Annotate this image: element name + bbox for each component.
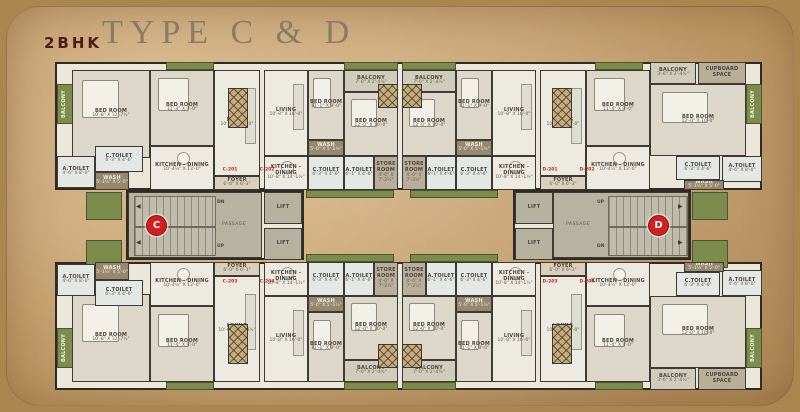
room-living: LIVING10'-8" X 16'-0" [264, 296, 308, 382]
room-dims: 5'-0" X 5'-1½" [458, 304, 490, 309]
room-store: STORE ROOM4'-0" X 7'-2½" [374, 262, 398, 296]
room-wash: WASH5'-0" X 5'-1½" [456, 296, 492, 312]
lift-label: LIFT [528, 205, 541, 211]
room-kitchen: KITCHEN - DINING10'-8" X 14'-1½" [492, 156, 536, 190]
room-label: CUPBOARD SPACE [699, 67, 745, 79]
room-dims: 12'-0" X 10'-0" [682, 332, 715, 337]
room-bed: BED ROOM12'-0" X 10'-0" [650, 84, 746, 156]
room-wash: WASH5'-1½" X 5'-0" [684, 180, 724, 190]
flat-number-label: D-204 [579, 280, 594, 285]
room-dims: 3'-6" X 2'-4½" [657, 379, 689, 384]
room-dims: 6'-3" X 4'-6" [684, 168, 711, 173]
room-wash: WASH5'-1½" X 5'-0" [95, 172, 129, 190]
room-dims: 6'-1" X 4'-6" [427, 173, 454, 178]
lift: LIFT [264, 228, 302, 260]
room-dims: 4'-6" X 8'-0" [728, 169, 755, 174]
room-toilet: C.TOILET6'-3" X 4'-6" [95, 146, 143, 172]
stair-arrow-icon: ◀ [136, 204, 141, 210]
planter-strip [306, 190, 394, 198]
room-bed: BED ROOM11'-4" X 9'-0" [586, 70, 650, 146]
room-balcony: BALCONY3'-6" X 2'-4½" [650, 62, 696, 84]
room-wash: WASH5'-0" X 5'-1½" [308, 140, 344, 156]
room-dims: 3'-6" X 2'-4½" [657, 73, 689, 78]
bhk-label: 2BHK [44, 34, 102, 52]
room-toilet: A.TOILET6'-1" X 4'-6" [426, 156, 456, 190]
planter-strip [344, 382, 398, 390]
room-dims: 6'-3" X 4'-6" [312, 173, 339, 178]
room-dims: 11'-4" X 9'-0" [603, 344, 633, 349]
room-bed: BED ROOM10'-8" X 12'-7½" [72, 294, 150, 382]
room-dims: 12'-0" X 10'-0" [413, 328, 446, 333]
room-store: STORE ROOM4'-0" X 7'-2½" [402, 156, 426, 190]
room-bed: BED ROOM12'-0" X 10'-0" [650, 296, 746, 368]
room-dims: 7'-0" X 2'-4½" [355, 371, 387, 376]
room-toilet: A.TOILET4'-6" X 8'-0" [722, 156, 762, 182]
room-dims: 11'-1" X 9'-0" [311, 347, 341, 352]
lift-label: LIFT [528, 241, 541, 247]
room-bed: BED ROOM11'-4" X 9'-0" [586, 306, 650, 382]
duct-shaft [402, 344, 422, 368]
room-bed: BED ROOM11'-1" X 9'-0" [308, 70, 344, 140]
room-toilet: A.TOILET6'-1" X 4'-6" [344, 262, 374, 296]
duct-shaft [552, 88, 572, 128]
room-dims: 5'-0" X 5'-1½" [310, 148, 342, 153]
flat-number-label: D-203 [542, 280, 557, 285]
room-balcony-v: BALCONY3'-6" X 1'-10½" [746, 84, 762, 124]
duct-shaft [378, 84, 398, 108]
room-store: CUPBOARD SPACE [698, 368, 746, 390]
planter-strip [692, 192, 728, 220]
floor-plan: BALCONY3'-6" X 1'-10½"BED ROOM10'-8" X 1… [0, 0, 800, 412]
room-wash: WASH5'-1½" X 5'-0" [684, 262, 724, 272]
room-dims: 4'-0" X 7'-2½" [375, 280, 397, 290]
type-title: TYPE C & D [102, 14, 356, 52]
room-dims: 10'-8" X 14'-1½" [495, 176, 532, 181]
room-wash: WASH5'-1½" X 5'-0" [95, 262, 129, 280]
room-dims: 6'-0" X 6'-3" [223, 269, 250, 274]
room-toilet: C.TOILET6'-3" X 4'-6" [308, 262, 344, 296]
planter-strip [166, 62, 214, 70]
wing-badge-d: D [648, 215, 669, 236]
room-dims: 5'-0" X 5'-1½" [310, 304, 342, 309]
room-toilet: A.TOILET6'-1" X 4'-6" [344, 156, 374, 190]
room-toilet: C.TOILET6'-3" X 4'-6" [308, 156, 344, 190]
planter-strip [402, 382, 456, 390]
room-kitchen: KITCHEN - DINING10'-8" X 14'-1½" [264, 156, 308, 190]
room-dims: 11'-4" X 9'-0" [603, 108, 633, 113]
room-toilet: A.TOILET4'-6" X 8'-0" [722, 270, 762, 296]
lift-label: LIFT [277, 205, 290, 211]
duct-shaft [378, 344, 398, 368]
room-dims: 12'-0" X 10'-0" [413, 124, 446, 129]
room-dims: 4'-0" X 7'-2½" [403, 280, 425, 290]
room-dims: 5'-0" X 5'-1½" [458, 148, 490, 153]
duct-shaft [552, 324, 572, 364]
flat-number-label: C-202 [260, 168, 275, 173]
room-bed: BED ROOM11'-1" X 9'-0" [456, 312, 492, 382]
room-dims: 10'-8" X 12'-7½" [92, 338, 129, 343]
room-living: LIVING10'-8" X 16'-0" [492, 296, 536, 382]
room-toilet: C.TOILET6'-3" X 4'-6" [676, 272, 720, 296]
room-wash: WASH5'-0" X 5'-1½" [456, 140, 492, 156]
room-foyer: FOYER6'-0" X 6'-3" [540, 176, 586, 190]
room-dims: 6'-1" X 4'-6" [345, 279, 372, 284]
lift: LIFT [515, 192, 553, 224]
room-dims: 4'-0" X 7'-2½" [403, 174, 425, 184]
room-kitchen: KITCHEN - DINING10'-4½" X 13'-0" [150, 146, 214, 190]
room-dims: 11'-4" X 9'-0" [167, 344, 197, 349]
planter-strip [86, 192, 122, 220]
flat-number-label: D-201 [542, 168, 557, 173]
stair-direction-label: UP [597, 200, 604, 205]
duct-shaft [402, 84, 422, 108]
room-bed: BED ROOM10'-8" X 12'-7½" [72, 70, 150, 158]
room-dims: 11'-1" X 9'-0" [311, 105, 341, 110]
room-dims: 6'-0" X 6'-3" [223, 183, 250, 188]
room-dims: 12'-0" X 10'-0" [682, 120, 715, 125]
room-living: LIVING10'-8" X 16'-0" [264, 70, 308, 156]
room-dims: 10'-4½" X 13'-0" [163, 284, 200, 289]
lift-label: LIFT [277, 241, 290, 247]
room-dims: 10'-8" X 16'-0" [270, 113, 303, 118]
room-dims: 7'-0" X 2'-4½" [413, 371, 445, 376]
room-dims: 4'-6" X 8'-0" [728, 283, 755, 288]
room-label: BALCONY [751, 90, 757, 118]
duct-shaft [228, 88, 248, 128]
stair-arrow-icon: ◀ [136, 240, 141, 246]
room-kitchen: KITCHEN - DINING10'-4½" X 13'-0" [586, 146, 650, 190]
room-toilet: C.TOILET6'-3" X 4'-6" [676, 156, 720, 180]
room-dims: 10'-8" X 16'-0" [270, 339, 303, 344]
room-dims: 6'-3" X 4'-6" [105, 293, 132, 298]
room-dims: 6'-0" X 6'-3" [549, 269, 576, 274]
room-dims: 11'-4" X 9'-0" [167, 108, 197, 113]
flat-number-label: D-202 [579, 168, 594, 173]
room-bed: BED ROOM11'-1" X 9'-0" [456, 70, 492, 140]
stair-direction-label: UP [217, 244, 224, 249]
room-dims: 6'-0" X 6'-3" [549, 183, 576, 188]
planter-strip [595, 62, 643, 70]
room-kitchen: KITCHEN - DINING10'-8" X 14'-1½" [492, 262, 536, 296]
room-dims: 10'-8" X 14'-1½" [267, 176, 304, 181]
room-dims: 6'-3" X 4'-6" [684, 284, 711, 289]
passage-label: PASSAGE [566, 222, 590, 227]
room-dims: 6'-3" X 4'-6" [312, 279, 339, 284]
room-kitchen: KITCHEN - DINING10'-4½" X 13'-0" [586, 262, 650, 306]
room-toilet: A.TOILET6'-1" X 4'-6" [426, 262, 456, 296]
stair-direction-label: DN [597, 244, 605, 249]
room-dims: 12'-0" X 10'-0" [355, 124, 388, 129]
room-dims: 6'-3" X 4'-6" [460, 279, 487, 284]
planter-strip [166, 382, 214, 390]
room-label: BALCONY [62, 90, 68, 118]
room-toilet: C.TOILET6'-3" X 4'-6" [456, 156, 492, 190]
room-store: STORE ROOM4'-0" X 7'-2½" [402, 262, 426, 296]
planter-strip [410, 190, 498, 198]
room-toilet: C.TOILET6'-3" X 4'-6" [95, 280, 143, 306]
room-dims: 6'-3" X 4'-6" [105, 159, 132, 164]
flat-number-label: C-201 [223, 168, 238, 173]
duct-shaft [228, 324, 248, 364]
flat-number-label: C-203 [223, 280, 238, 285]
room-label: BALCONY [62, 334, 68, 362]
planter-strip [410, 254, 498, 262]
room-dims: 6'-1" X 4'-6" [427, 279, 454, 284]
room-bed: BED ROOM11'-4" X 9'-0" [150, 70, 214, 146]
stair-arrow-icon: ▶ [678, 204, 683, 210]
room-dims: 4'-0" X 7'-2½" [375, 174, 397, 184]
room-dims: 10'-4½" X 13'-0" [163, 168, 200, 173]
room-foyer: FOYER6'-0" X 6'-3" [540, 262, 586, 276]
lift: LIFT [264, 192, 302, 224]
room-foyer: FOYER6'-0" X 6'-3" [214, 262, 260, 276]
room-dims: 11'-1" X 9'-0" [459, 105, 489, 110]
room-balcony: BALCONY3'-6" X 2'-4½" [650, 368, 696, 390]
room-dims: 10'-8" X 16'-0" [498, 113, 531, 118]
room-dims: 12'-0" X 10'-0" [355, 328, 388, 333]
room-store: CUPBOARD SPACE [698, 62, 746, 84]
room-toilet: C.TOILET6'-3" X 4'-6" [456, 262, 492, 296]
room-dims: 10'-4½" X 13'-0" [599, 284, 636, 289]
room-dims: 10'-8" X 12'-7½" [92, 114, 129, 119]
lift: LIFT [515, 228, 553, 260]
room-dims: 5'-1½" X 5'-0" [688, 267, 720, 272]
room-label: CUPBOARD SPACE [699, 373, 745, 385]
room-dims: 10'-8" X 14'-1½" [495, 282, 532, 287]
stair-arrow-icon: ▶ [678, 240, 683, 246]
room-toilet: A.TOILET4'-6" X 8'-0" [57, 264, 95, 296]
room-foyer: FOYER6'-0" X 6'-3" [214, 176, 260, 190]
planter-strip [595, 382, 643, 390]
room-dims: 6'-3" X 4'-6" [460, 173, 487, 178]
room-bed: BED ROOM11'-1" X 9'-0" [308, 312, 344, 382]
passage-label: PASSAGE [222, 222, 246, 227]
room-toilet: A.TOILET4'-6" X 8'-0" [57, 156, 95, 188]
stair-direction-label: DN [217, 200, 225, 205]
room-dims: 6'-1" X 4'-6" [345, 173, 372, 178]
room-dims: 10'-8" X 16'-0" [498, 339, 531, 344]
flat-number-label: C-204 [260, 280, 275, 285]
room-dims: 5'-1½" X 5'-0" [96, 181, 128, 186]
planter-strip [306, 254, 394, 262]
wing-badge-c: C [146, 215, 167, 236]
room-label: BALCONY [751, 334, 757, 362]
room-dims: 10'-4½" X 13'-0" [599, 168, 636, 173]
room-store: STORE ROOM4'-0" X 7'-2½" [374, 156, 398, 190]
room-dims: 4'-6" X 8'-0" [62, 172, 89, 177]
planter-strip [402, 62, 456, 70]
room-dims: 5'-1½" X 5'-0" [96, 271, 128, 276]
room-kitchen: KITCHEN - DINING10'-4½" X 13'-0" [150, 262, 214, 306]
room-living: LIVING10'-8" X 16'-0" [492, 70, 536, 156]
room-dims: 5'-1½" X 5'-0" [688, 185, 720, 190]
room-balcony-v: BALCONY3'-6" X 1'-10½" [57, 328, 73, 368]
room-dims: 11'-1" X 9'-0" [459, 347, 489, 352]
room-bed: BED ROOM11'-4" X 9'-0" [150, 306, 214, 382]
room-wash: WASH5'-0" X 5'-1½" [308, 296, 344, 312]
planter-strip [344, 62, 398, 70]
room-balcony-v: BALCONY3'-6" X 1'-10½" [746, 328, 762, 368]
room-balcony-v: BALCONY3'-6" X 1'-10½" [57, 84, 73, 124]
room-dims: 4'-6" X 8'-0" [62, 280, 89, 285]
